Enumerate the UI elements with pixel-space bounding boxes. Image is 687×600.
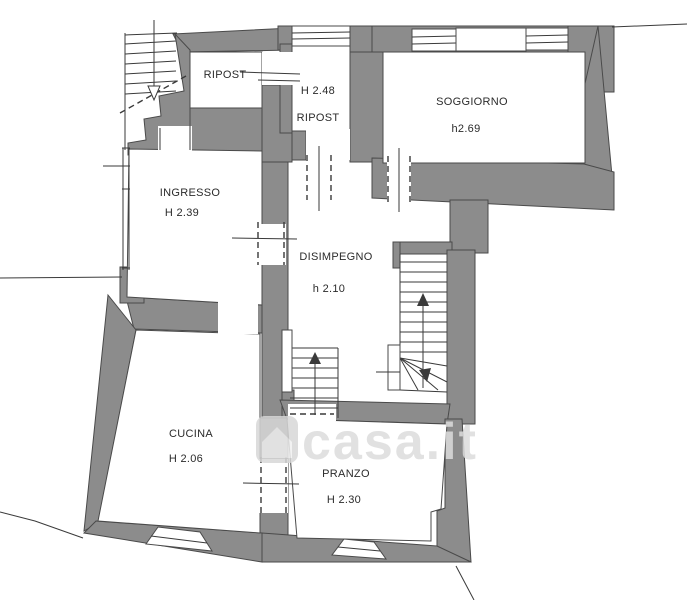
boundary-top-right — [612, 24, 687, 27]
room-ripost2-lobe — [306, 129, 350, 160]
window-ripost2 — [292, 26, 350, 46]
stair-niche — [282, 330, 292, 392]
wall-stairwell-stub — [393, 242, 400, 268]
label-pranzo-height: H 2.30 — [327, 494, 361, 506]
wall-stairwell-right — [447, 250, 475, 424]
door-ingresso-cucina — [218, 299, 258, 334]
stairs-main — [376, 254, 447, 392]
label-soggiorno-height: h2.69 — [451, 123, 480, 135]
label-ripost2: RIPOST — [297, 112, 340, 124]
floor-plan-canvas: RIPOST H 2.48 RIPOST SOGGIORNO h2.69 ING… — [0, 0, 687, 600]
wall-top-band — [173, 28, 292, 52]
wall-ripost1-bottom — [190, 108, 262, 152]
label-ingresso: INGRESSO — [160, 187, 221, 199]
label-disimpegno-height: h 2.10 — [313, 283, 345, 295]
window-soggiorno-left — [412, 29, 456, 51]
label-cucina-height: H 2.06 — [169, 453, 203, 465]
window-ingresso-left — [103, 148, 130, 270]
boundary-bottom-right — [456, 566, 474, 600]
boundary-left — [0, 277, 122, 278]
floor-plan-page: RIPOST H 2.48 RIPOST SOGGIORNO h2.69 ING… — [0, 0, 687, 600]
label-disimpegno: DISIMPEGNO — [299, 251, 372, 263]
room-ingresso-floor — [127, 149, 262, 305]
wall-ripost2-step — [292, 131, 306, 160]
boundary-bottom-left — [0, 512, 83, 538]
window-soggiorno-center — [456, 28, 526, 51]
door-ingresso-entry — [158, 126, 192, 151]
stair-parapet — [388, 345, 400, 390]
label-ripost2-height: H 2.48 — [301, 85, 335, 97]
label-cucina: CUCINA — [169, 428, 213, 440]
watermark: casa.it — [256, 413, 478, 471]
watermark-text: casa.it — [302, 413, 478, 471]
wall-connector — [450, 200, 488, 253]
label-ingresso-height: H 2.39 — [165, 207, 199, 219]
up-arrow-icon — [417, 293, 429, 306]
label-soggiorno: SOGGIORNO — [436, 96, 508, 108]
wall-stairwell-top — [393, 242, 452, 254]
label-ripost1: RIPOST — [204, 69, 247, 81]
window-soggiorno-right — [526, 28, 568, 50]
